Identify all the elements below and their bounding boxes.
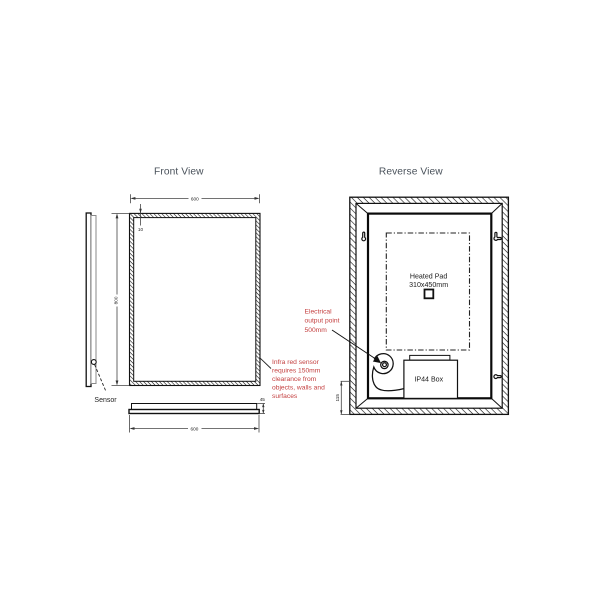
svg-text:IP44 Box: IP44 Box [414,376,443,384]
svg-text:Infra red sensor: Infra red sensor [272,359,320,366]
svg-text:310x450mm: 310x450mm [409,281,448,289]
svg-text:Sensor: Sensor [94,397,117,404]
svg-text:10: 10 [138,227,144,232]
svg-text:clearance from: clearance from [272,376,317,383]
svg-text:600: 600 [190,427,198,432]
svg-text:surfaces: surfaces [272,393,298,400]
svg-text:600: 600 [191,197,199,202]
svg-text:output point: output point [305,318,340,325]
svg-text:45: 45 [260,397,266,402]
svg-text:requires 150mm: requires 150mm [272,368,321,375]
svg-text:800: 800 [113,296,118,304]
svg-text:500mm: 500mm [305,327,328,334]
svg-text:objects, walls and: objects, walls and [272,385,325,392]
svg-text:Reverse View: Reverse View [379,167,443,178]
svg-text:Heated Pad: Heated Pad [410,272,448,280]
svg-text:Electrical: Electrical [305,308,333,315]
svg-text:115: 115 [335,394,340,402]
svg-text:Front View: Front View [154,167,204,178]
